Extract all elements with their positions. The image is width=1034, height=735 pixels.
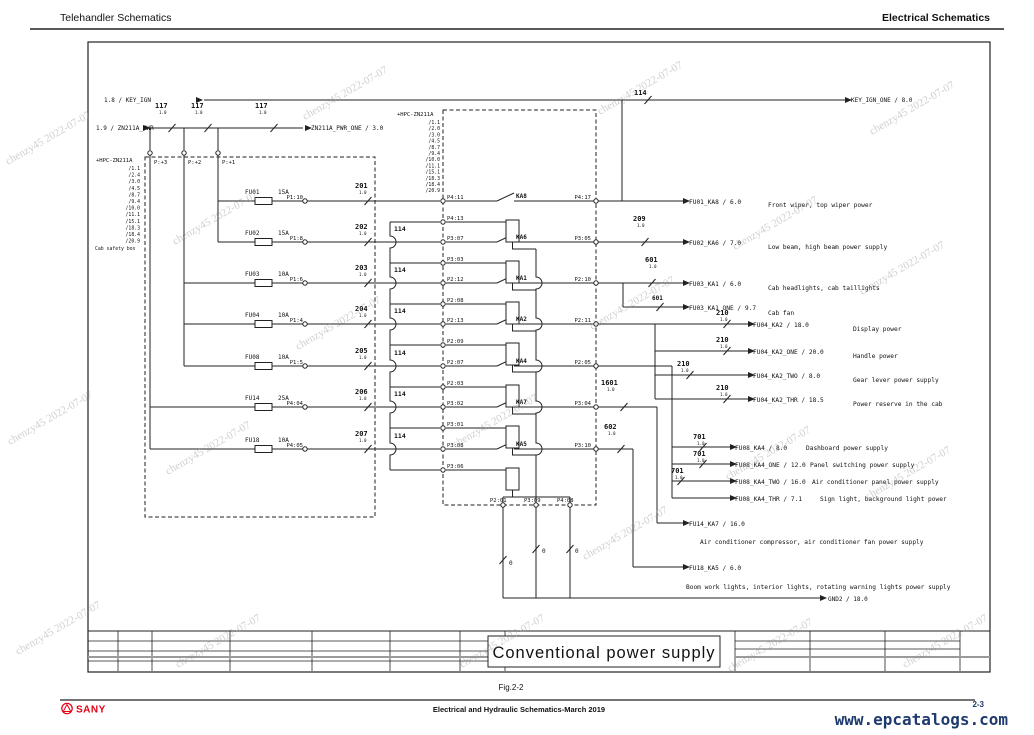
wire-spec: 1.0 [359,355,367,360]
fuse-name: FU04 [245,312,260,319]
footer-doc-title: Electrical and Hydraulic Schematics-Marc… [433,705,605,714]
output-net: FU14_KA7 / 16.0 [689,521,745,528]
net-zn-pwr: 1.9 / ZN211A_PWR [96,125,154,132]
hpc-left-name: +HPC-ZN211A [96,158,133,164]
wire-label: 206 [355,388,368,396]
wire-label: 210 [716,384,729,392]
wire-spec: 1.0 [359,190,367,195]
output-net: FU03_KA1_ONE / 9.7 [689,305,756,312]
watermark-text: chenzy45 2022-07-07 [581,504,671,563]
output-desc: Gear lever power supply [853,377,939,384]
fuse-name: FU18 [245,437,260,444]
wire-label-114: 114 [394,307,406,315]
drawing-title: Conventional power supply [492,644,715,662]
relay-in-pin: P2:12 [447,277,464,283]
watermark-text: chenzy45 2022-07-07 [301,64,391,123]
wire-spec: 1.0 [697,458,705,463]
wire-label: 701 [693,450,706,458]
wire-label: 207 [355,430,368,438]
relay-out-pin: P3:05 [574,236,591,242]
output-net: FU04_KA2 / 18.0 [753,322,809,329]
relay-name: KA2 [516,316,527,323]
hpc-ref: /10.0 [426,157,441,163]
hpc-ref: /11.1 [126,212,141,218]
flow-arrows [143,97,852,601]
wire-label-114: 114 [394,225,406,233]
wire-label: 205 [355,347,368,355]
output-net: FU08_KA4_TWO / 16.0 [735,479,806,486]
ground-pin: P4:08 [557,498,574,504]
relay-name: KA8 [516,193,527,200]
hpc-ref: /18.4 [426,182,441,188]
schematic-canvas: Telehandler Schematics Electrical Schema… [0,0,1034,735]
hpc-mid-name: +HPC-ZN211A [397,112,434,118]
relay-coil-pin: P3:06 [447,464,464,470]
wire-label: 210 [716,336,729,344]
wire-spec: 1.0 [159,110,167,115]
relay-name: KA5 [516,441,527,448]
output-desc: Front wiper, top wiper power [768,202,873,209]
wire-label: 701 [671,467,684,475]
wire-label-114: 114 [394,432,406,440]
wire-spec: 1.0 [681,368,689,373]
wire-label-114: 114 [394,266,406,274]
output-desc: Air conditioner compressor, air conditio… [700,539,924,546]
output-wire-labels: 209 1.0 601 1.0 601 210 1.0 210 1.0 210 … [601,215,729,480]
wire-spec: 1.0 [195,110,203,115]
wire-spec: 1.0 [359,231,367,236]
output-net: FU03_KA1 / 6.0 [689,281,741,288]
ground-pin: P2:01 [490,498,507,504]
fuse-name: FU02 [245,230,260,237]
fuse-pin: P1:6 [290,277,303,283]
hpc-ref: /9.4 [428,151,440,157]
hpc-ref: /9.4 [128,199,140,205]
hpc-ref: /1.1 [428,120,440,126]
output-desc: Sign light, background light power [820,496,947,503]
wire-label: 203 [355,264,368,272]
wire-spec: 1.0 [608,431,616,436]
ground-wire-label: 0 [542,548,546,555]
watermark-text: chenzy45 2022-07-07 [596,59,686,118]
gnd-net-label: GND2 / 18.0 [828,596,868,603]
relay-name: KA1 [516,275,527,282]
ground-pin: P3:09 [524,498,541,504]
output-desc: Handle power [853,353,898,360]
relay-out-pin: P3:10 [574,443,591,449]
fuse-pin: P4:04 [286,401,303,407]
net-key-ign-one: KEY_IGN_ONE / 8.0 [851,97,913,104]
fuse-rating: 15A [278,230,289,237]
wire-label: 601 [645,256,658,264]
watermark-text: chenzy45 2022-07-07 [6,389,96,448]
cab-safety-box-caption: Cab safety box [95,246,136,252]
hpc-ref: /3.0 [128,179,140,185]
fuse-name: FU14 [245,395,260,402]
wire-slash-marks [169,96,731,564]
hpc-ref: /15.1 [426,170,441,176]
watermark-text: chenzy45 2022-07-07 [4,109,94,168]
net-key-ign: 1.8 / KEY_IGN [104,97,151,104]
output-net: FU08_KA4_THR / 7.1 [735,496,802,503]
output-net: FU04_KA2_ONE / 20.0 [753,349,824,356]
fuse-pin: P4:05 [286,443,303,449]
fuse-name: FU08 [245,354,260,361]
wire-label: 701 [693,433,706,441]
ground-wire-label: 0 [509,560,513,567]
output-desc: Panel switching power supply [810,462,915,469]
watermark-text: chenzy45 2022-07-07 [864,444,954,503]
hpc-ref: /18.3 [426,176,441,182]
output-net: FU04_KA2_TWO / 8.0 [753,373,820,380]
relay-in-pin: P3:07 [447,236,464,242]
relay-coil-pin: P3:01 [447,422,464,428]
watermark-text: chenzy45 2022-07-07 [724,424,814,483]
brand-name: SANY [76,705,106,716]
relay-out-pin: P2:10 [574,277,591,283]
fuse-pin: P1:8 [290,236,303,242]
hpc-mid-block: +HPC-ZN211A /1.1 /2.0 /3.0 /4.5 /8.7 /9.… [397,112,440,194]
plus-pin: P:+3 [154,160,167,166]
wire-spec: 1.0 [675,475,683,480]
fuse-rating: 10A [278,354,289,361]
wire-label-114: 114 [394,349,406,357]
output-net: FU04_KA2_THR / 18.5 [753,397,824,404]
output-desc: Low beam, high beam power supply [768,244,887,251]
wire-spec: 1.0 [637,223,645,228]
wire-label: 1601 [601,379,618,387]
wire-label-117: 117 [191,102,204,110]
output-net: FU18_KA5 / 6.0 [689,565,741,572]
wire-spec: 1.0 [720,344,728,349]
hpc-ref: /18.4 [126,232,141,238]
wire-spec: 1.0 [697,441,705,446]
wire-spec: 1.0 [359,396,367,401]
hpc-ref: /3.0 [428,132,440,138]
relay-out-pin: P4:17 [574,195,591,201]
net-zn-pwr-one: ZN211A_PWR_ONE / 3.0 [311,125,384,132]
hpc-ref: /2.4 [128,173,140,179]
output-desc: Dashboard power supply [806,445,888,452]
wire-label: 202 [355,223,368,231]
fuse-name: FU03 [245,271,260,278]
relay-coil-pin: P2:09 [447,339,464,345]
watermark-text: chenzy45 2022-07-07 [726,616,816,675]
hpc-ref: /4.5 [128,186,140,192]
fuse-pin: P1:5 [290,360,303,366]
header-left: Telehandler Schematics [60,12,171,24]
hpc-ref: /20.9 [426,188,441,194]
relay-in-pin: P2:13 [447,318,464,324]
output-desc: Power reserve in the cab [853,401,943,408]
relay-in-pin: P2:07 [447,360,464,366]
hpc-ref: /1.1 [128,166,140,172]
wire-spec: 1.0 [359,272,367,277]
hpc-ref: /2.0 [428,126,440,132]
wire-label-117: 117 [155,102,168,110]
plus-pin: P:+1 [222,160,235,166]
wire-label: 602 [604,423,617,431]
wire-spec: 1.0 [720,317,728,322]
wire-spec: 1.0 [649,264,657,269]
hpc-ref: /15.1 [126,219,141,225]
page-number: 2-3 [972,700,984,709]
fuse-rating: 10A [278,271,289,278]
wire-spec: 1.0 [720,392,728,397]
hpc-left-block: +HPC-ZN211A /1.1 /2.4 /3.0 /4.5 /8.7 /9.… [95,158,235,252]
relay-coil-pin: P2:03 [447,381,464,387]
watermark-text: chenzy45 2022-07-07 [164,419,254,478]
relay-in-pin: P3:02 [447,401,464,407]
sany-logo-triangle-icon [63,705,71,712]
hpc-ref: /8.7 [428,145,440,151]
output-desc: Boom work lights, interior lights, rotat… [686,584,951,591]
relay-out-pin: P3:04 [574,401,591,407]
watermark-text: chenzy45 2022-07-07 [868,79,958,138]
output-desc: Cab fan [768,310,794,317]
hpc-ref: /8.7 [128,192,140,198]
fuse-pin: P1:4 [290,318,304,324]
output-desc: Display power [853,326,902,333]
relay-name: KA4 [516,358,527,365]
relay-coil-pin: P2:08 [447,298,464,304]
header-right: Electrical Schematics [882,12,990,24]
relay-name: KA6 [516,234,527,241]
schematic-page: Telehandler Schematics Electrical Schema… [0,0,1034,735]
sany-logo: SANY [62,703,106,715]
wire-label: 201 [355,182,368,190]
fuse-pin: P1:10 [286,195,303,201]
hpc-ref: /20.9 [126,239,141,245]
wire-label: 210 [677,360,690,368]
hpc-ref: /4.5 [428,139,440,145]
wire-label-117: 117 [255,102,268,110]
wire-label-114: 114 [394,390,406,398]
plus-pin: P:+2 [188,160,201,166]
wire-spec: 1.0 [259,110,267,115]
hpc-ref: /11.1 [426,163,441,169]
site-link[interactable]: www.epcatalogs.com [835,710,1009,729]
connector-pins [148,151,598,507]
output-net: FU01_KA8 / 6.0 [689,199,741,206]
relay-coil-pin: P4:13 [447,216,464,222]
hpc-ref: /10.0 [126,206,141,212]
hpc-ref: /18.3 [126,225,141,231]
wire-spec: 1.0 [359,438,367,443]
figure-caption: Fig.2-2 [499,683,524,692]
relay-out-pin: P2:05 [574,360,591,366]
wire-label: 209 [633,215,646,223]
watermark-text: chenzy45 2022-07-07 [14,599,104,658]
fuse-rating: 10A [278,312,289,319]
relay-in-pin: P4:11 [447,195,464,201]
relay-coil-pin: P3:03 [447,257,464,263]
wire-spec: 1.0 [607,387,615,392]
ground-wire-label: 0 [575,548,579,555]
